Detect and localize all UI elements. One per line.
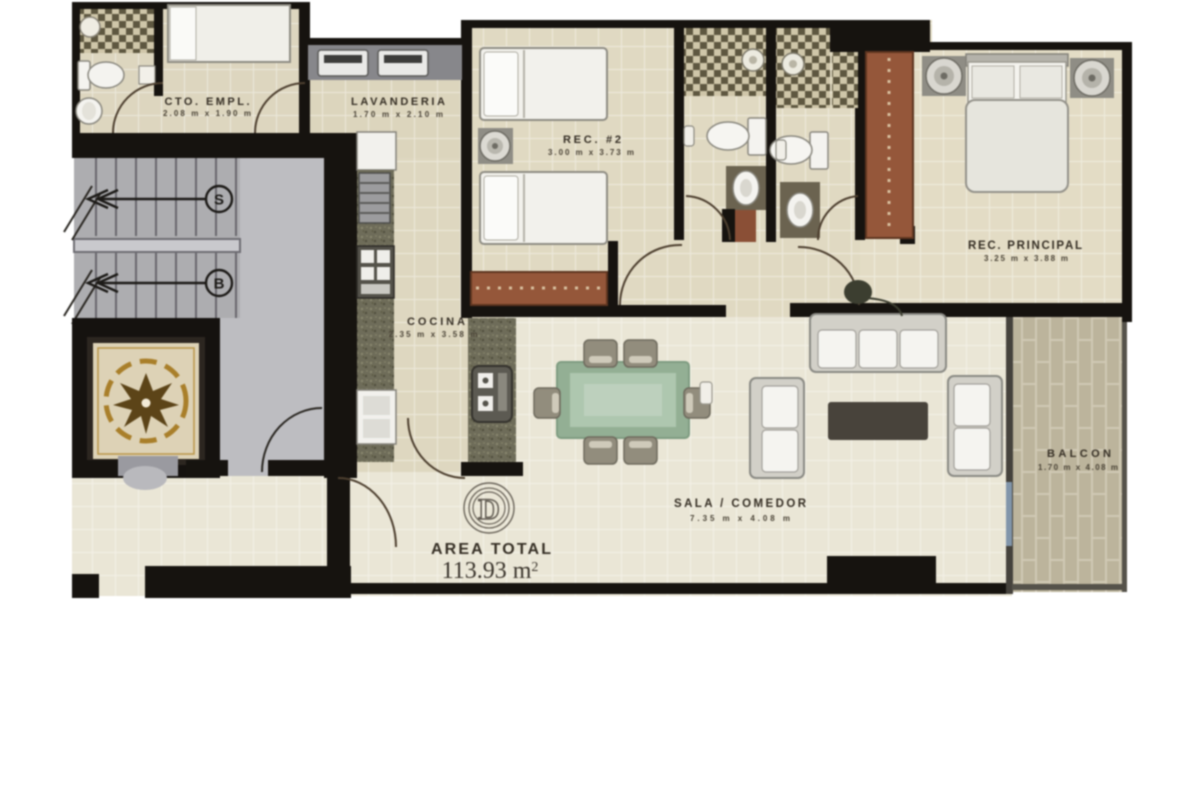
svg-text:D: D [478, 493, 500, 526]
svg-text:CTO. EMPL.: CTO. EMPL. [165, 96, 250, 108]
svg-text:113.93 m2: 113.93 m2 [442, 558, 539, 584]
svg-text:B: B [214, 276, 225, 293]
svg-text:AREA TOTAL: AREA TOTAL [431, 541, 551, 558]
svg-text:S: S [214, 192, 224, 209]
